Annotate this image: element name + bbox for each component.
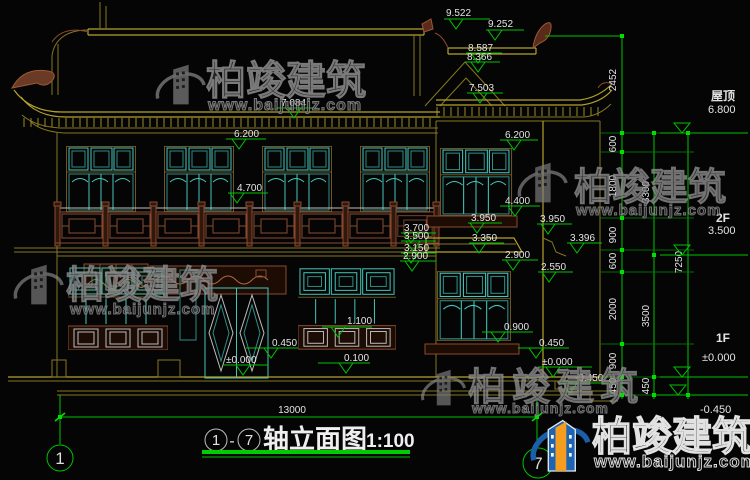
svg-text:www.baijunjz.com: www.baijunjz.com [471,400,609,416]
svg-text:900: 900 [608,226,619,243]
svg-text:3500: 3500 [641,304,652,327]
svg-text:6.200: 6.200 [234,129,259,140]
svg-text:1: 1 [55,449,64,468]
svg-text:9.252: 9.252 [488,19,513,30]
svg-text:3.500: 3.500 [404,231,429,242]
svg-text:6.800: 6.800 [708,104,736,116]
svg-text:屋顶: 屋顶 [711,89,735,103]
svg-text:4.700: 4.700 [237,183,262,194]
title-text: 轴立面图 [263,424,367,454]
cad-elevation-svg: 9.522 9.252 8.587 8.366 7.503 7.084 6.20… [0,0,750,480]
svg-text:13000: 13000 [278,405,306,416]
svg-text:2.900: 2.900 [403,251,428,262]
svg-text:600: 600 [608,135,619,152]
svg-text:±0.000: ±0.000 [702,352,736,364]
svg-text:1F: 1F [716,331,730,345]
svg-text:600: 600 [608,252,619,269]
svg-text:1.100: 1.100 [347,316,372,327]
svg-text:3.350: 3.350 [472,233,497,244]
svg-text:±0.000: ±0.000 [226,355,257,366]
svg-text:0.100: 0.100 [344,353,369,364]
title-underline [202,450,410,454]
svg-text:0.900: 0.900 [504,322,529,333]
svg-text:-: - [229,433,234,450]
elevation-drawing-canvas: 9.522 9.252 8.587 8.366 7.503 7.084 6.20… [0,0,750,480]
svg-text:3.396: 3.396 [570,233,595,244]
brand-logo: 柏竣建筑 www.baijunjz.com [533,415,750,471]
svg-text:4.400: 4.400 [505,196,530,207]
svg-text:1: 1 [212,432,220,449]
svg-text:www.baijunjz.com: www.baijunjz.com [207,97,362,114]
svg-text:8.366: 8.366 [467,52,492,63]
svg-text:2.550: 2.550 [541,262,566,273]
svg-text:0.450: 0.450 [272,338,297,349]
svg-text:3.950: 3.950 [471,213,496,224]
svg-text:www.baijunjz.com: www.baijunjz.com [593,452,750,471]
svg-text:9.522: 9.522 [446,8,471,19]
svg-text:7: 7 [245,432,253,449]
svg-text:2000: 2000 [608,297,619,320]
svg-text:2452: 2452 [608,68,619,91]
svg-text:2.900: 2.900 [505,250,530,261]
svg-text:7.503: 7.503 [469,83,494,94]
svg-text:6.200: 6.200 [505,130,530,141]
svg-text:3.950: 3.950 [540,214,565,225]
svg-text:3.500: 3.500 [708,225,736,237]
svg-text:www.baijunjz.com: www.baijunjz.com [575,202,721,219]
title-scale: 1:100 [366,431,415,452]
svg-text:0.450: 0.450 [539,338,564,349]
svg-text:www.baijunjz.com: www.baijunjz.com [69,301,215,318]
